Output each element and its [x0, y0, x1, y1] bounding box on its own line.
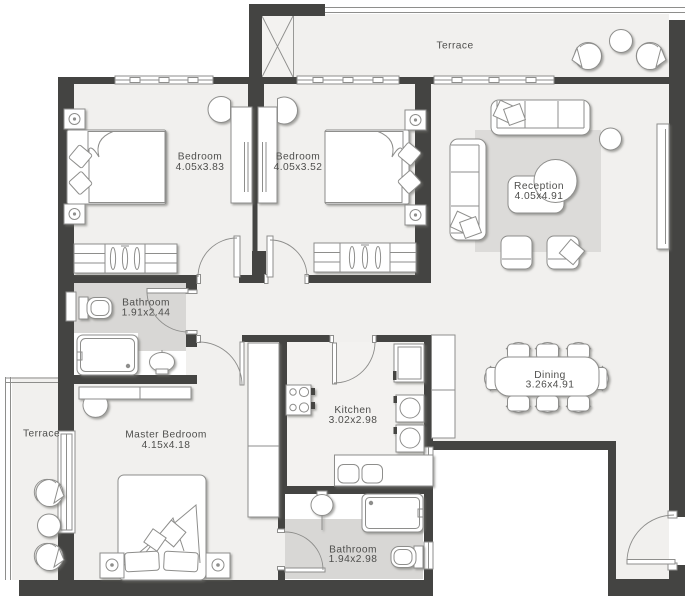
- svg-text:Bedroom: Bedroom: [276, 152, 321, 163]
- svg-text:Master Bedroom: Master Bedroom: [125, 430, 207, 441]
- svg-text:1.94x2.98: 1.94x2.98: [329, 554, 378, 565]
- svg-text:4.05x3.83: 4.05x3.83: [176, 162, 225, 173]
- svg-text:Terrace: Terrace: [436, 41, 473, 52]
- svg-text:4.05x3.52: 4.05x3.52: [274, 162, 323, 173]
- svg-text:3.26x4.91: 3.26x4.91: [526, 380, 575, 391]
- svg-text:Terrace: Terrace: [23, 429, 60, 440]
- svg-text:Bedroom: Bedroom: [178, 152, 223, 163]
- svg-text:1.91x2.44: 1.91x2.44: [122, 308, 171, 319]
- svg-text:4.15x4.18: 4.15x4.18: [142, 440, 191, 451]
- svg-text:3.02x2.98: 3.02x2.98: [329, 415, 378, 426]
- svg-text:4.05x4.91: 4.05x4.91: [515, 191, 564, 202]
